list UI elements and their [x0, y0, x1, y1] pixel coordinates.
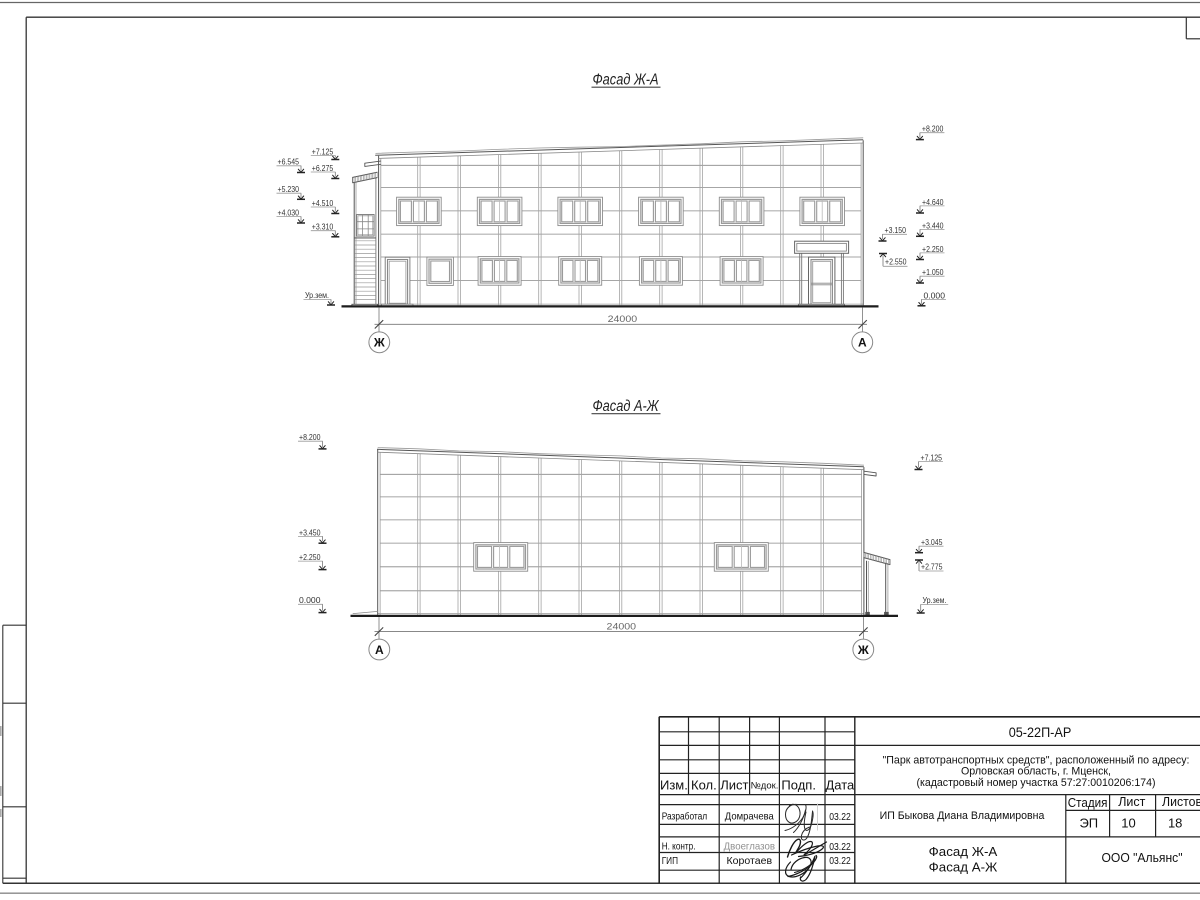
svg-text:24000: 24000 — [608, 314, 638, 325]
svg-text:+4.640: +4.640 — [922, 198, 944, 207]
svg-text:+4.510: +4.510 — [312, 199, 334, 208]
svg-text:А: А — [375, 643, 384, 657]
svg-text:+1.050: +1.050 — [922, 268, 944, 277]
svg-text:05-22П-АР: 05-22П-АР — [1009, 725, 1072, 740]
svg-text:Кол.: Кол. — [691, 777, 717, 792]
svg-text:Стадия: Стадия — [1068, 796, 1108, 810]
svg-text:Н. контр.: Н. контр. — [662, 842, 696, 853]
svg-text:+5.230: +5.230 — [278, 185, 300, 194]
svg-text:(кадастровый номер участка 57:: (кадастровый номер участка 57:27:0010206… — [917, 777, 1156, 789]
svg-text:+3.440: +3.440 — [922, 221, 944, 230]
svg-text:18: 18 — [1168, 816, 1182, 831]
svg-text:+3.450: +3.450 — [299, 528, 321, 537]
svg-text:Фасад А-Ж: Фасад А-Ж — [929, 859, 998, 874]
svg-text:Лист: Лист — [1118, 795, 1145, 809]
svg-text:ЭП: ЭП — [1079, 816, 1098, 831]
svg-text:Фасад А-Ж: Фасад А-Ж — [593, 398, 660, 415]
svg-text:03.22: 03.22 — [829, 811, 851, 823]
svg-text:+2.775: +2.775 — [921, 562, 943, 571]
svg-text:0.000: 0.000 — [924, 291, 946, 300]
svg-text:+7.125: +7.125 — [312, 148, 334, 157]
svg-text:+3.150: +3.150 — [885, 226, 907, 235]
svg-text:Лист: Лист — [720, 777, 748, 792]
svg-text:+3.310: +3.310 — [312, 223, 334, 232]
svg-text:Ж: Ж — [373, 336, 385, 350]
svg-text:+8.200: +8.200 — [922, 125, 944, 134]
svg-text:Фасад Ж-А: Фасад Ж-А — [593, 71, 659, 88]
svg-text:Орловская область, г. Мценск,: Орловская область, г. Мценск, — [961, 766, 1111, 778]
svg-text:Коротаев: Коротаев — [727, 855, 773, 867]
svg-text:Фасад Ж-А: Фасад Ж-А — [929, 844, 998, 859]
svg-text:03.22: 03.22 — [829, 855, 851, 867]
svg-text:+2.250: +2.250 — [922, 245, 944, 254]
svg-text:+7.125: +7.125 — [921, 454, 943, 463]
svg-text:ИП Быкова Диана Владимировна: ИП Быкова Диана Владимировна — [880, 810, 1046, 822]
svg-text:Ур.зем.: Ур.зем. — [305, 291, 329, 300]
svg-text:Подп.: Подп. — [781, 777, 816, 792]
svg-text:+2.250: +2.250 — [299, 553, 321, 562]
svg-text:03.22: 03.22 — [829, 841, 851, 853]
svg-text:Двоеглазов: Двоеглазов — [724, 841, 776, 853]
svg-text:№док.: №док. — [751, 781, 779, 792]
svg-text:+6.275: +6.275 — [312, 164, 334, 173]
svg-text:Дата: Дата — [826, 777, 856, 792]
svg-text:Разработал: Разработал — [662, 810, 708, 822]
svg-text:А: А — [858, 336, 867, 350]
svg-text:+3.045: +3.045 — [921, 538, 943, 547]
svg-text:Ж: Ж — [857, 643, 869, 657]
svg-text:Листов: Листов — [1162, 795, 1200, 809]
svg-text:Ур.зем.: Ур.зем. — [923, 596, 947, 605]
svg-text:+4.030: +4.030 — [278, 208, 300, 217]
svg-text:0.000: 0.000 — [299, 596, 321, 605]
svg-text:Изм.: Изм. — [660, 777, 688, 792]
svg-text:"Парк автотранспортных средств: "Парк автотранспортных средств", располо… — [883, 754, 1190, 766]
svg-text:+6.545: +6.545 — [278, 158, 300, 167]
svg-text:10: 10 — [1121, 816, 1135, 831]
svg-text:+8.200: +8.200 — [299, 433, 321, 442]
svg-text:ООО "Альянс": ООО "Альянс" — [1102, 850, 1183, 865]
svg-text:Домрачева: Домрачева — [725, 810, 774, 822]
svg-text:24000: 24000 — [607, 621, 637, 632]
svg-text:ГИП: ГИП — [662, 856, 678, 867]
svg-text:+2.550: +2.550 — [885, 258, 907, 267]
